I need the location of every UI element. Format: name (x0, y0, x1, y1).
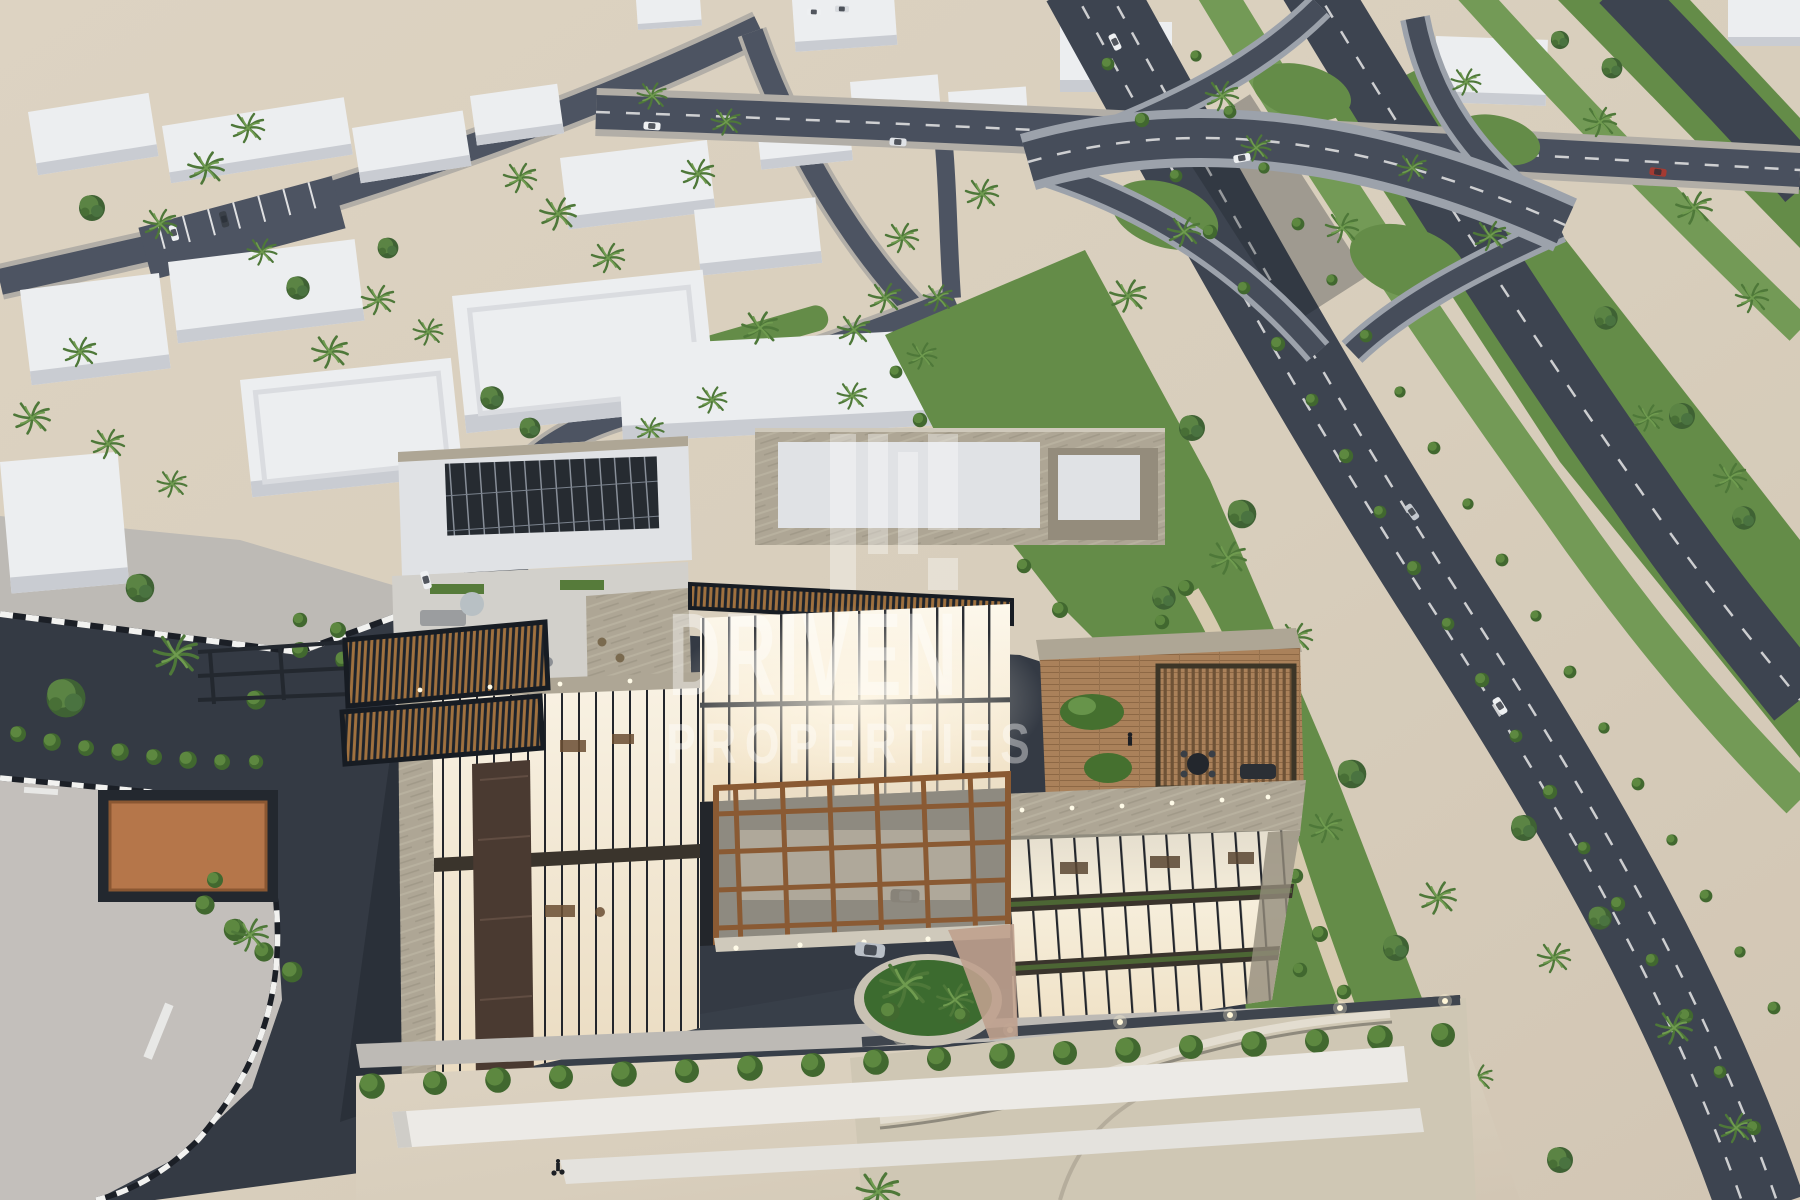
roof-stone-volume (755, 428, 1165, 545)
entrance-canopy (700, 774, 1010, 952)
rooftop-terrace-right (1036, 628, 1304, 804)
terrace-planter (560, 580, 604, 590)
person-on-terrace (1128, 732, 1133, 745)
cantilever-balcony (98, 790, 278, 902)
terrace-planter (1084, 753, 1132, 783)
solar-panels (445, 456, 659, 535)
left-wing-roof (398, 436, 692, 576)
terrace-spa (460, 592, 484, 616)
terrace-sofa (420, 610, 466, 626)
terrace-pot (616, 654, 625, 663)
right-wing (1002, 780, 1306, 1040)
marble-feature-wall (472, 760, 534, 1084)
terrace-planter (430, 584, 484, 594)
terrace-pot (598, 638, 607, 647)
aerial-render: DRIVEN PROPERTIES (0, 0, 1800, 1200)
terrace-table (1187, 753, 1209, 775)
terrace-sofa (1240, 764, 1276, 779)
